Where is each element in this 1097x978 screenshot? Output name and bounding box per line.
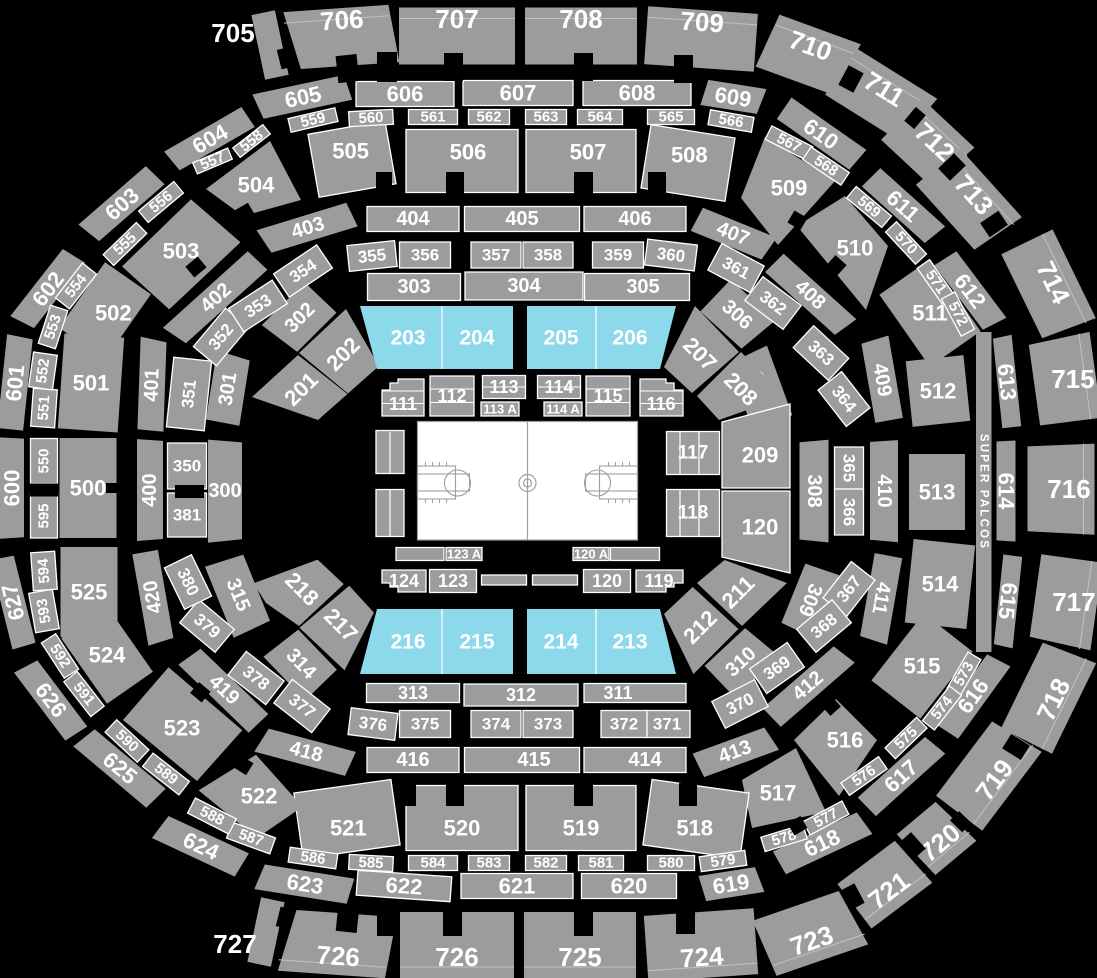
svg-text:405: 405 bbox=[505, 208, 538, 230]
svg-text:521: 521 bbox=[330, 815, 367, 840]
svg-text:123: 123 bbox=[438, 571, 468, 591]
svg-text:303: 303 bbox=[397, 276, 430, 298]
svg-text:365: 365 bbox=[840, 454, 859, 482]
svg-text:564: 564 bbox=[587, 109, 613, 126]
svg-text:117: 117 bbox=[678, 443, 709, 464]
svg-text:355: 355 bbox=[357, 245, 387, 267]
svg-text:519: 519 bbox=[563, 816, 600, 841]
svg-text:613: 613 bbox=[993, 362, 1022, 401]
svg-text:622: 622 bbox=[385, 872, 423, 900]
svg-text:120: 120 bbox=[592, 571, 622, 591]
svg-text:514: 514 bbox=[922, 572, 959, 597]
svg-text:565: 565 bbox=[658, 109, 683, 126]
svg-text:706: 706 bbox=[319, 4, 364, 37]
svg-text:313: 313 bbox=[398, 683, 428, 703]
svg-text:523: 523 bbox=[164, 716, 201, 741]
svg-text:371: 371 bbox=[653, 715, 681, 734]
svg-text:512: 512 bbox=[920, 379, 957, 404]
svg-text:356: 356 bbox=[411, 246, 439, 265]
svg-text:506: 506 bbox=[450, 140, 487, 165]
svg-text:561: 561 bbox=[420, 109, 445, 126]
svg-text:705: 705 bbox=[211, 18, 254, 48]
svg-text:118: 118 bbox=[678, 503, 709, 524]
svg-text:579: 579 bbox=[709, 851, 736, 871]
svg-text:580: 580 bbox=[658, 855, 683, 872]
svg-text:304: 304 bbox=[507, 275, 541, 297]
svg-text:614: 614 bbox=[994, 473, 1019, 510]
svg-text:214: 214 bbox=[543, 631, 578, 654]
svg-text:213: 213 bbox=[612, 631, 647, 654]
svg-text:518: 518 bbox=[676, 815, 713, 840]
svg-text:515: 515 bbox=[904, 654, 941, 679]
svg-text:582: 582 bbox=[533, 855, 558, 872]
svg-text:113 A: 113 A bbox=[483, 402, 517, 417]
svg-text:562: 562 bbox=[476, 109, 501, 126]
svg-text:595: 595 bbox=[36, 503, 53, 528]
svg-text:509: 509 bbox=[771, 176, 808, 201]
svg-text:357: 357 bbox=[482, 246, 510, 265]
svg-text:581: 581 bbox=[588, 855, 613, 872]
svg-text:621: 621 bbox=[499, 874, 536, 899]
svg-text:724: 724 bbox=[679, 940, 725, 973]
svg-text:502: 502 bbox=[95, 301, 132, 326]
svg-text:505: 505 bbox=[332, 139, 369, 164]
svg-text:120: 120 bbox=[742, 515, 779, 540]
svg-text:715: 715 bbox=[1051, 364, 1094, 394]
svg-text:351: 351 bbox=[178, 379, 200, 409]
svg-text:507: 507 bbox=[570, 140, 607, 165]
svg-text:717: 717 bbox=[1052, 587, 1095, 617]
svg-text:716: 716 bbox=[1047, 474, 1090, 504]
svg-text:726: 726 bbox=[435, 942, 478, 972]
svg-text:404: 404 bbox=[396, 208, 430, 230]
svg-text:615: 615 bbox=[994, 581, 1023, 620]
svg-text:376: 376 bbox=[358, 713, 388, 735]
svg-text:601: 601 bbox=[1, 363, 30, 402]
svg-text:584: 584 bbox=[420, 855, 446, 872]
svg-text:359: 359 bbox=[604, 246, 632, 265]
svg-text:501: 501 bbox=[73, 371, 110, 396]
svg-text:360: 360 bbox=[656, 244, 686, 266]
svg-text:707: 707 bbox=[435, 4, 478, 34]
svg-text:550: 550 bbox=[36, 448, 53, 473]
svg-text:585: 585 bbox=[358, 854, 384, 872]
svg-text:594: 594 bbox=[35, 557, 54, 584]
svg-text:366: 366 bbox=[840, 498, 859, 526]
svg-text:410: 410 bbox=[873, 474, 895, 507]
svg-text:586: 586 bbox=[299, 848, 326, 868]
svg-text:504: 504 bbox=[238, 173, 275, 198]
svg-text:203: 203 bbox=[390, 327, 425, 350]
svg-text:123 A: 123 A bbox=[447, 547, 482, 562]
svg-text:205: 205 bbox=[543, 327, 578, 350]
svg-text:563: 563 bbox=[533, 109, 558, 126]
svg-text:552: 552 bbox=[33, 357, 53, 384]
svg-text:373: 373 bbox=[534, 715, 562, 734]
svg-text:406: 406 bbox=[618, 208, 651, 230]
svg-text:120 A: 120 A bbox=[574, 547, 609, 562]
svg-text:416: 416 bbox=[396, 749, 429, 771]
svg-text:400: 400 bbox=[139, 473, 161, 506]
svg-text:517: 517 bbox=[760, 781, 797, 806]
svg-text:600: 600 bbox=[0, 470, 25, 507]
svg-text:381: 381 bbox=[173, 506, 201, 525]
svg-text:375: 375 bbox=[411, 715, 439, 734]
svg-text:119: 119 bbox=[644, 571, 673, 591]
svg-text:522: 522 bbox=[241, 784, 278, 809]
svg-text:401: 401 bbox=[140, 368, 163, 402]
svg-text:300: 300 bbox=[208, 480, 241, 502]
svg-text:374: 374 bbox=[482, 715, 511, 734]
svg-text:524: 524 bbox=[89, 643, 126, 668]
svg-text:551: 551 bbox=[35, 395, 54, 421]
svg-text:608: 608 bbox=[619, 81, 656, 106]
svg-text:727: 727 bbox=[213, 929, 256, 959]
svg-text:414: 414 bbox=[628, 749, 662, 771]
svg-text:606: 606 bbox=[387, 82, 424, 107]
svg-text:560: 560 bbox=[358, 109, 384, 127]
svg-text:206: 206 bbox=[612, 327, 647, 350]
svg-text:372: 372 bbox=[610, 715, 638, 734]
svg-text:209: 209 bbox=[742, 443, 779, 468]
svg-text:216: 216 bbox=[390, 631, 425, 654]
svg-text:516: 516 bbox=[827, 728, 864, 753]
svg-text:525: 525 bbox=[71, 580, 108, 605]
svg-text:508: 508 bbox=[671, 143, 708, 168]
svg-text:114 A: 114 A bbox=[546, 402, 580, 417]
svg-text:215: 215 bbox=[459, 631, 494, 654]
svg-text:510: 510 bbox=[837, 236, 874, 261]
svg-text:358: 358 bbox=[534, 246, 562, 265]
svg-text:SUPER PALCOS: SUPER PALCOS bbox=[978, 434, 990, 550]
svg-text:709: 709 bbox=[680, 6, 725, 39]
svg-text:350: 350 bbox=[173, 457, 201, 476]
svg-text:726: 726 bbox=[316, 940, 361, 973]
svg-text:513: 513 bbox=[919, 480, 956, 505]
svg-text:415: 415 bbox=[517, 749, 550, 771]
svg-text:583: 583 bbox=[476, 855, 501, 872]
svg-text:308: 308 bbox=[803, 474, 825, 507]
svg-text:305: 305 bbox=[626, 276, 659, 298]
svg-text:311: 311 bbox=[603, 683, 632, 703]
svg-text:725: 725 bbox=[558, 942, 601, 972]
svg-text:607: 607 bbox=[500, 81, 537, 106]
svg-text:204: 204 bbox=[459, 327, 494, 350]
svg-text:520: 520 bbox=[444, 816, 481, 841]
svg-text:312: 312 bbox=[506, 685, 536, 705]
svg-text:500: 500 bbox=[70, 476, 107, 501]
svg-text:620: 620 bbox=[611, 874, 648, 899]
svg-text:708: 708 bbox=[559, 4, 602, 34]
svg-text:124: 124 bbox=[389, 571, 419, 591]
